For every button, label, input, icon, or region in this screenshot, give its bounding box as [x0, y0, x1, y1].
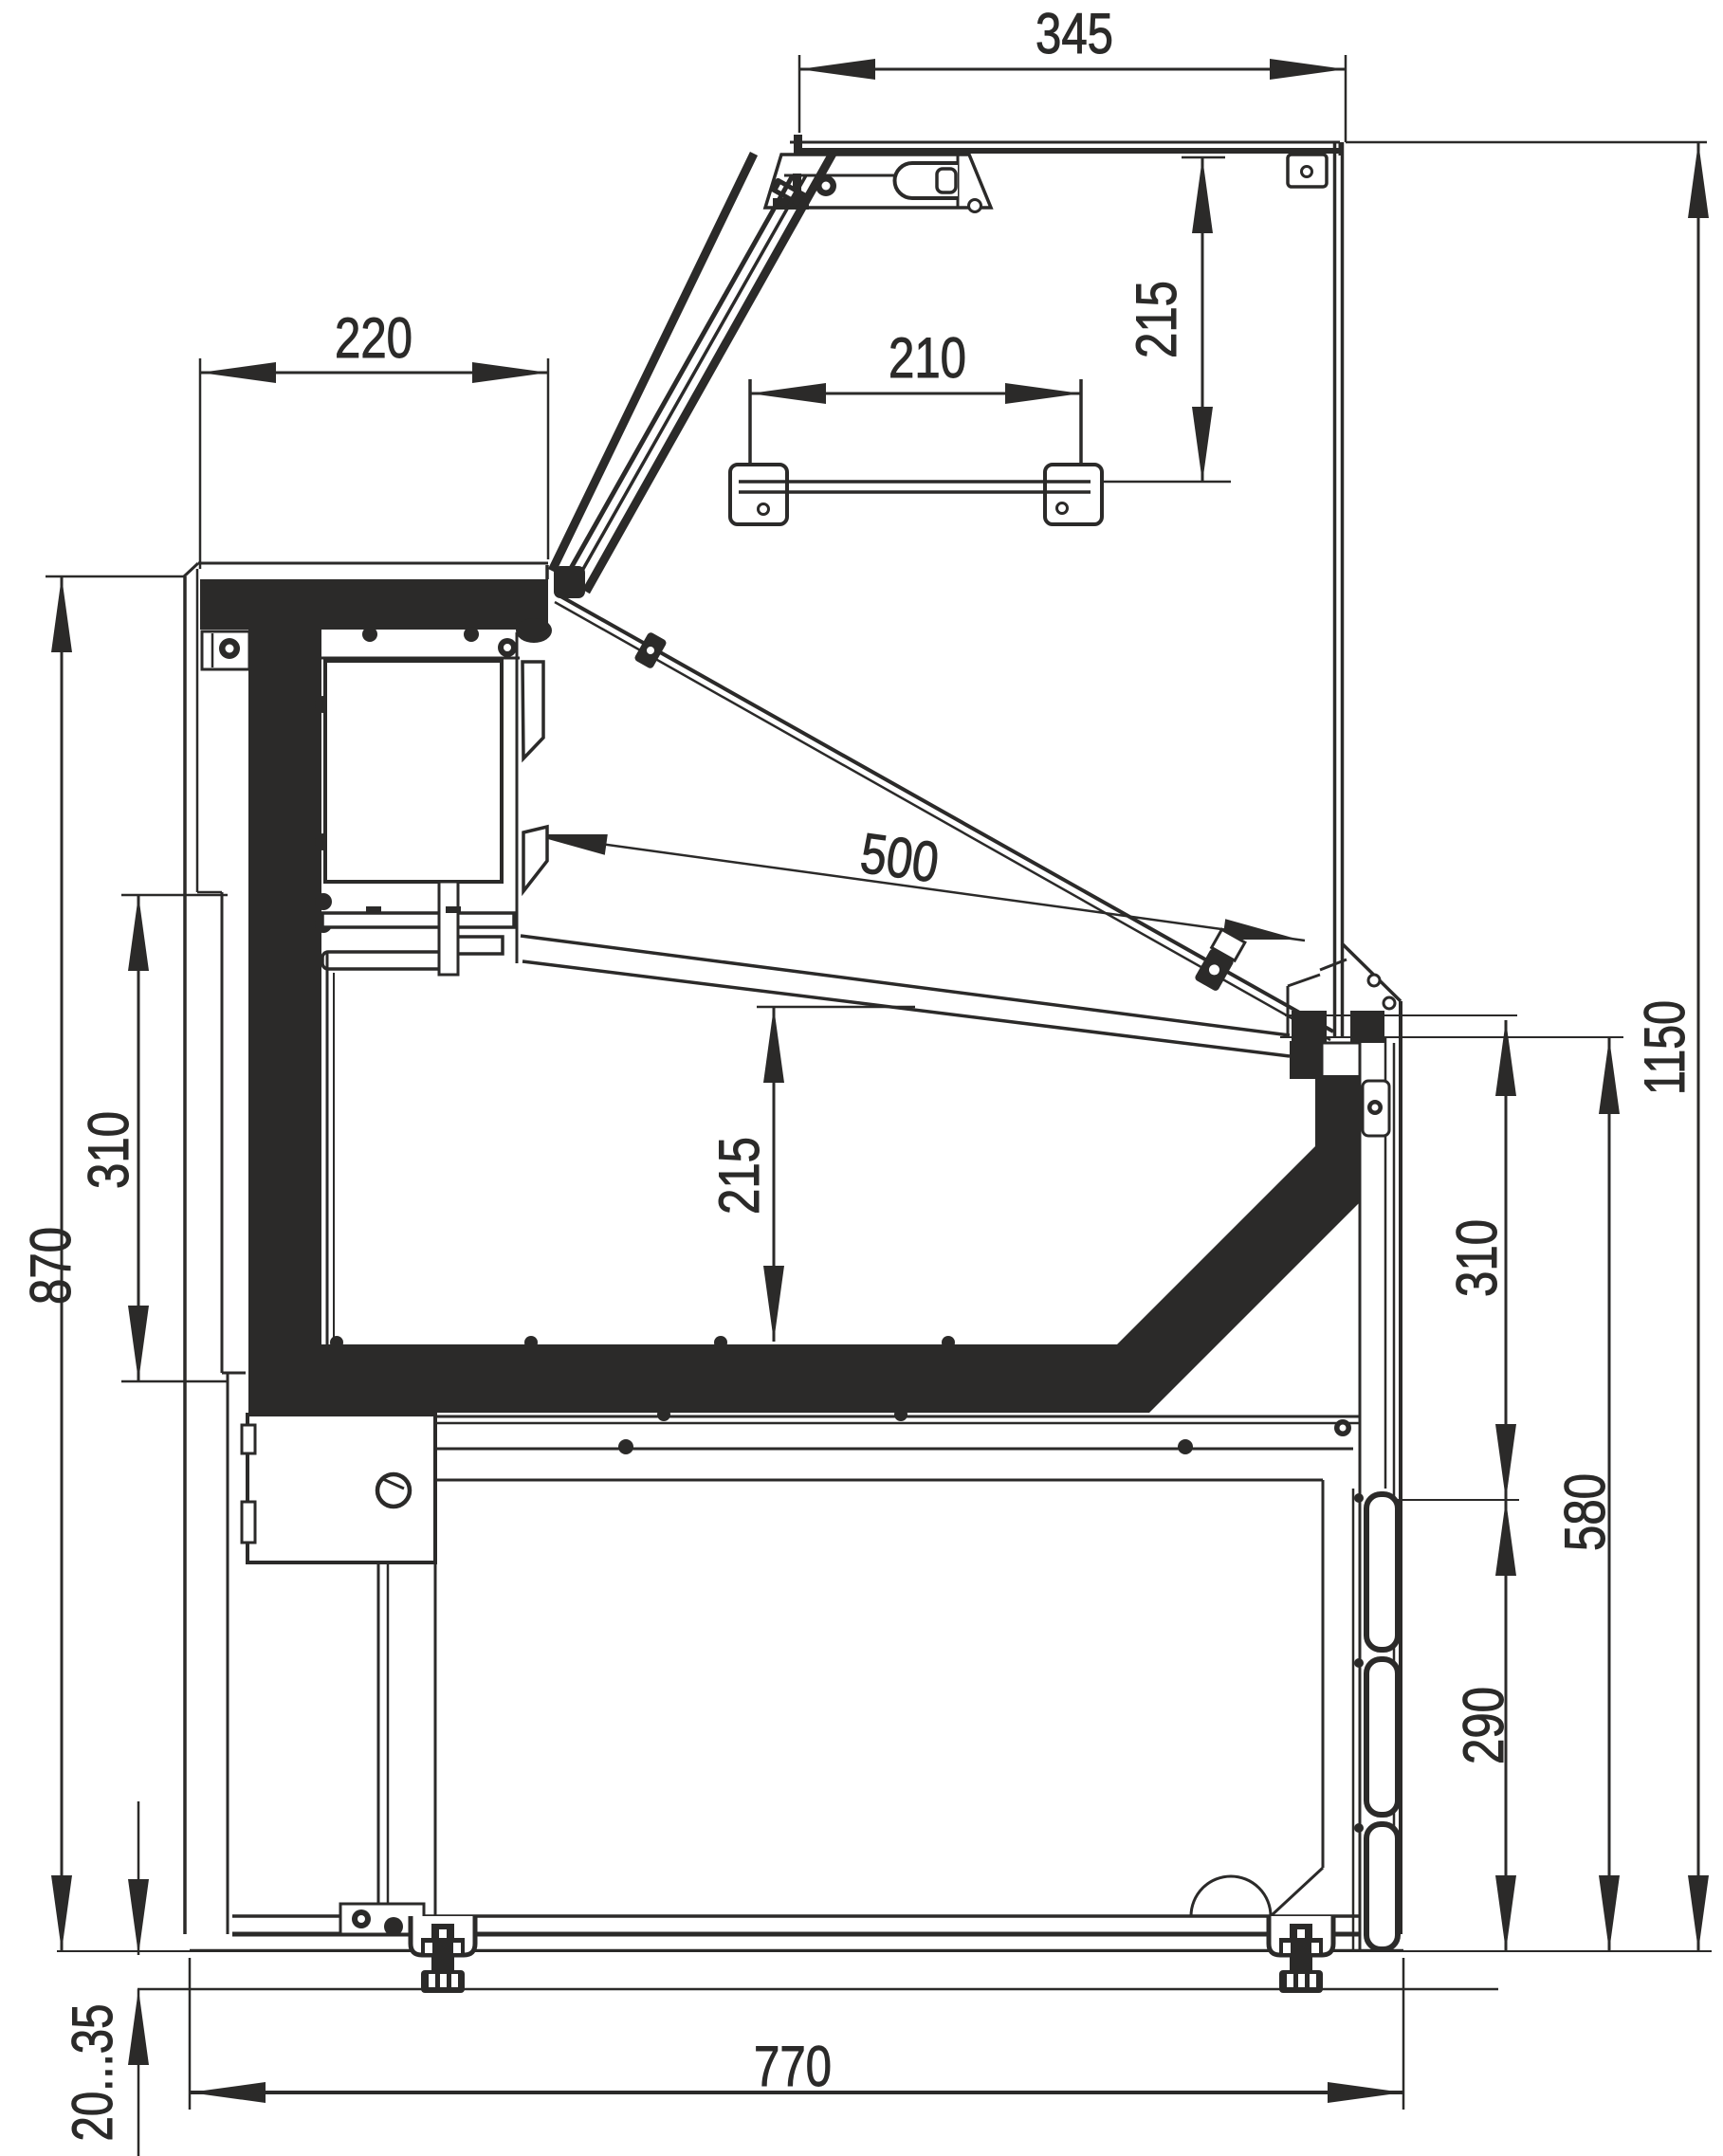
svg-text:215: 215 [707, 1137, 771, 1215]
svg-text:310: 310 [77, 1111, 140, 1189]
svg-text:1150: 1150 [1633, 1000, 1696, 1095]
svg-text:220: 220 [335, 306, 412, 370]
svg-text:345: 345 [1036, 2, 1113, 65]
svg-text:500: 500 [857, 821, 943, 895]
svg-text:290: 290 [1452, 1687, 1515, 1764]
svg-text:210: 210 [889, 326, 966, 390]
svg-text:20...35: 20...35 [61, 2004, 124, 2142]
svg-text:310: 310 [1445, 1219, 1509, 1297]
svg-text:580: 580 [1553, 1473, 1617, 1551]
svg-text:215: 215 [1125, 281, 1188, 358]
svg-text:870: 870 [19, 1227, 82, 1305]
svg-text:770: 770 [754, 2035, 832, 2098]
